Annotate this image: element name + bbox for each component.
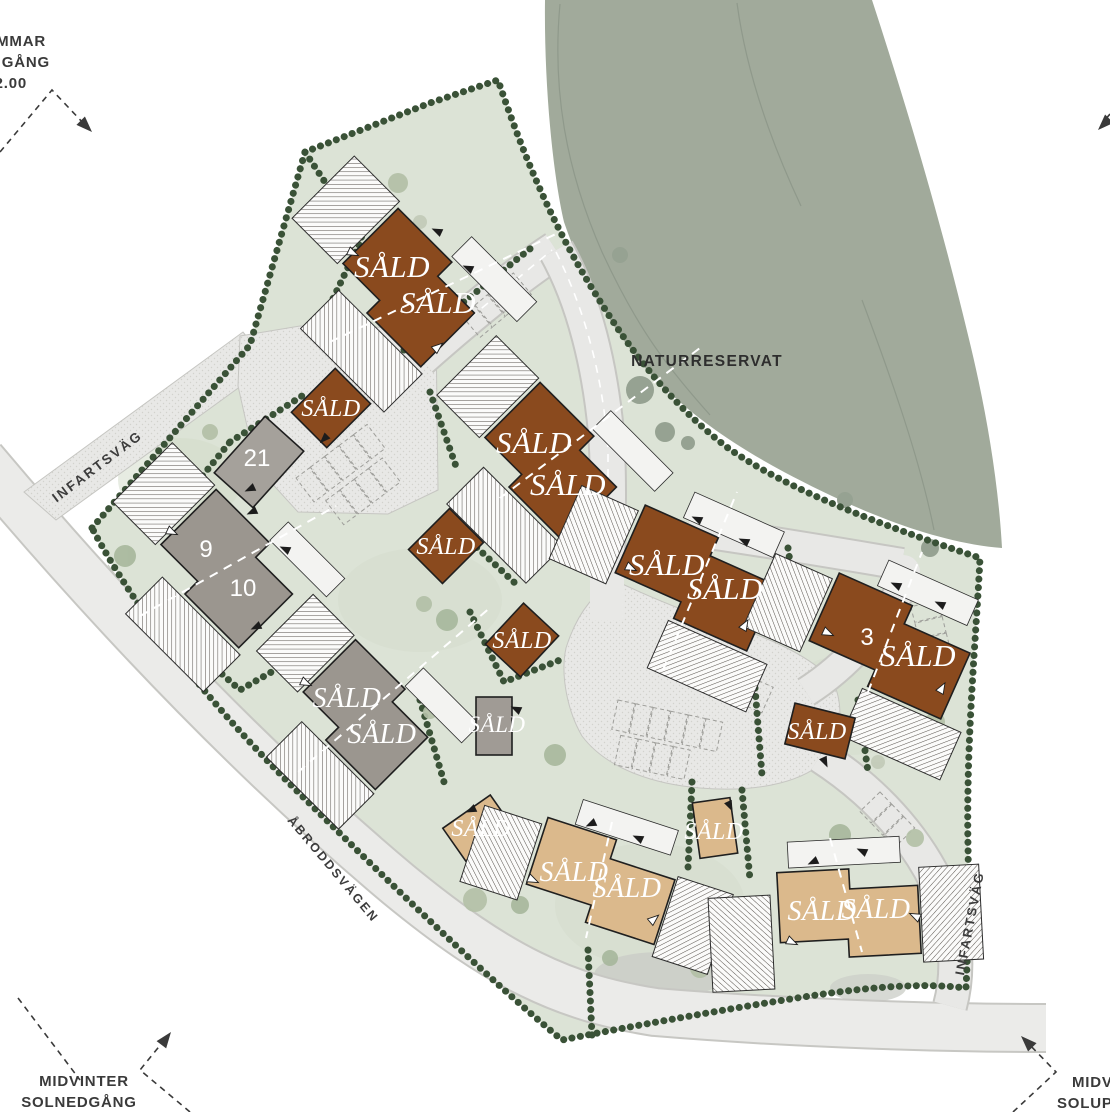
sold-label: SÅLD — [451, 816, 510, 842]
annotation-top-right — [1094, 114, 1110, 134]
site-plan-map: NATURRESERVAT INFARTSVÄG INFARTSVÄG ÅBRO… — [0, 0, 1110, 1112]
annotation-text: 2.00 — [0, 75, 27, 92]
sold-label: SÅLD — [348, 719, 417, 750]
sun-direction-arrow-icon — [157, 1028, 176, 1048]
plot-number-label: 21 — [244, 445, 271, 472]
sold-label: SÅLD — [354, 249, 430, 284]
sold-label: SÅLD — [530, 467, 606, 502]
sold-label: SÅLD — [492, 628, 551, 654]
plot-number-label: 9 — [199, 536, 212, 563]
annotation-text: SOLNEDGÅNG — [21, 1094, 137, 1111]
annotation-top-left: MMAR GÅNG 2.00 — [0, 33, 96, 152]
sold-label: SÅLD — [469, 712, 526, 737]
sold-label: SÅLD — [416, 534, 475, 560]
plot-number-label: 3 — [860, 624, 873, 651]
sold-label: SÅLD — [842, 894, 911, 925]
sold-label: SÅLD — [880, 638, 956, 673]
sold-label: SÅLD — [400, 285, 476, 320]
annotation-bottom-right: MIDV SOLUPP — [1013, 1032, 1110, 1112]
annotation-text: MIDVINTER — [39, 1073, 129, 1090]
site-plan-canvas: NATURRESERVAT INFARTSVÄG INFARTSVÄG ÅBRO… — [0, 0, 1110, 1112]
annotation-bottom-left: MIDVINTER SOLNEDGÅNG — [18, 998, 190, 1112]
annotation-text: SOLUPP — [1057, 1095, 1110, 1112]
plot-number-label: 10 — [230, 575, 257, 602]
nature-reserve-label: NATURRESERVAT — [631, 353, 783, 370]
annotation-text: GÅNG — [2, 54, 50, 71]
sold-label: SÅLD — [313, 683, 382, 714]
sun-direction-arrow-icon — [1094, 114, 1110, 134]
sold-label: SÅLD — [687, 571, 763, 606]
annotation-text: MIDV — [1072, 1074, 1110, 1091]
sold-label: SÅLD — [301, 396, 360, 422]
sold-label: SÅLD — [496, 425, 572, 460]
sold-label: SÅLD — [593, 873, 662, 904]
sold-label: SÅLD — [684, 819, 743, 845]
sold-label: SÅLD — [787, 719, 846, 745]
annotation-text: MMAR — [0, 33, 46, 50]
